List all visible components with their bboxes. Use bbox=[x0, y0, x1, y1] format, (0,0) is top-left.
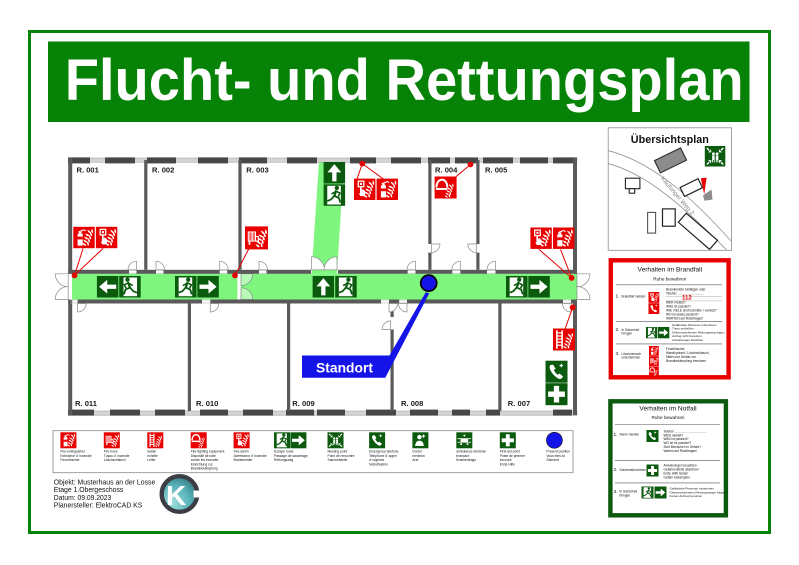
svg-text:Leiter: Leiter bbox=[147, 458, 156, 462]
svg-text:Keinen Aufzug benutzen: Keinen Aufzug benutzen bbox=[670, 494, 703, 498]
svg-text:R. 003: R. 003 bbox=[246, 166, 268, 175]
svg-text:Flucht- und Rettungsplan: Flucht- und Rettungsplan bbox=[65, 48, 744, 113]
svg-text:Arzt: Arzt bbox=[412, 458, 418, 462]
svg-text:Rettungsweg: Rettungsweg bbox=[274, 458, 293, 462]
svg-text:Standort: Standort bbox=[546, 458, 559, 462]
svg-text:Übersichtsplan: Übersichtsplan bbox=[631, 133, 709, 146]
svg-text:K: K bbox=[166, 480, 186, 511]
svg-text:Verhalten im Notfall: Verhalten im Notfall bbox=[639, 406, 697, 413]
svg-text:Erste Hilfe: Erste Hilfe bbox=[500, 462, 515, 466]
svg-text:1.: 1. bbox=[616, 294, 620, 300]
svg-text:Warten auf Rückfragen!: Warten auf Rückfragen! bbox=[664, 449, 698, 453]
svg-text:Brandmelder: Brandmelder bbox=[234, 458, 254, 462]
svg-text:Notruftelefon: Notruftelefon bbox=[369, 462, 388, 466]
svg-text:Planersteller: ElektroCAD KS: Planersteller: ElektroCAD KS bbox=[54, 501, 143, 510]
svg-text:Brandbekämpfung: Brandbekämpfung bbox=[191, 467, 218, 471]
svg-text:3.: 3. bbox=[616, 351, 620, 357]
svg-text:R. 004: R. 004 bbox=[435, 166, 458, 175]
svg-text:Löschschlauch: Löschschlauch bbox=[104, 458, 126, 462]
svg-text:R. 008: R. 008 bbox=[401, 399, 423, 408]
svg-text:Feuerlöscher: Feuerlöscher bbox=[60, 458, 80, 462]
svg-text:Gefahr bekämpfen: Gefahr bekämpfen bbox=[664, 475, 691, 479]
svg-text:R. 005: R. 005 bbox=[485, 166, 508, 175]
svg-text:2.: 2. bbox=[614, 467, 618, 473]
svg-text:Brandbekämpfung benutzen: Brandbekämpfung benutzen bbox=[666, 359, 706, 363]
svg-text:Krankentrage: Krankentrage bbox=[456, 458, 476, 462]
svg-text:R. 011: R. 011 bbox=[75, 399, 98, 408]
svg-text:R. 010: R. 010 bbox=[196, 399, 218, 408]
svg-text:Verhalten im Brandfall: Verhalten im Brandfall bbox=[638, 267, 703, 274]
svg-text:Ruhe bewahren: Ruhe bewahren bbox=[651, 415, 684, 420]
svg-text:unternehmen: unternehmen bbox=[622, 356, 641, 360]
svg-text:WARTEN auf Rückfragen!: WARTEN auf Rückfragen! bbox=[666, 316, 703, 320]
svg-text:Sammelstelle: Sammelstelle bbox=[328, 458, 348, 462]
svg-text:Anweisungen beachten: Anweisungen beachten bbox=[672, 338, 704, 342]
svg-text:Alarm melden: Alarm melden bbox=[620, 433, 640, 437]
svg-text:Standort: Standort bbox=[316, 360, 373, 376]
svg-text:Ruhe bewahren: Ruhe bewahren bbox=[653, 276, 686, 281]
svg-text:Sofortmaßnahmen: Sofortmaßnahmen bbox=[620, 468, 647, 472]
svg-text:R. 007: R. 007 bbox=[508, 399, 530, 408]
svg-text:bringen: bringen bbox=[620, 493, 631, 497]
svg-text:3.: 3. bbox=[614, 489, 618, 495]
svg-text:Brandfall melden: Brandfall melden bbox=[622, 294, 646, 298]
svg-text:R. 001: R. 001 bbox=[77, 166, 100, 175]
svg-text:R. 002: R. 002 bbox=[152, 166, 174, 175]
svg-text:R. 009: R. 009 bbox=[292, 399, 314, 408]
svg-text:1.: 1. bbox=[614, 432, 618, 438]
svg-text:bringen: bringen bbox=[622, 332, 633, 336]
svg-text:2.: 2. bbox=[616, 327, 620, 333]
